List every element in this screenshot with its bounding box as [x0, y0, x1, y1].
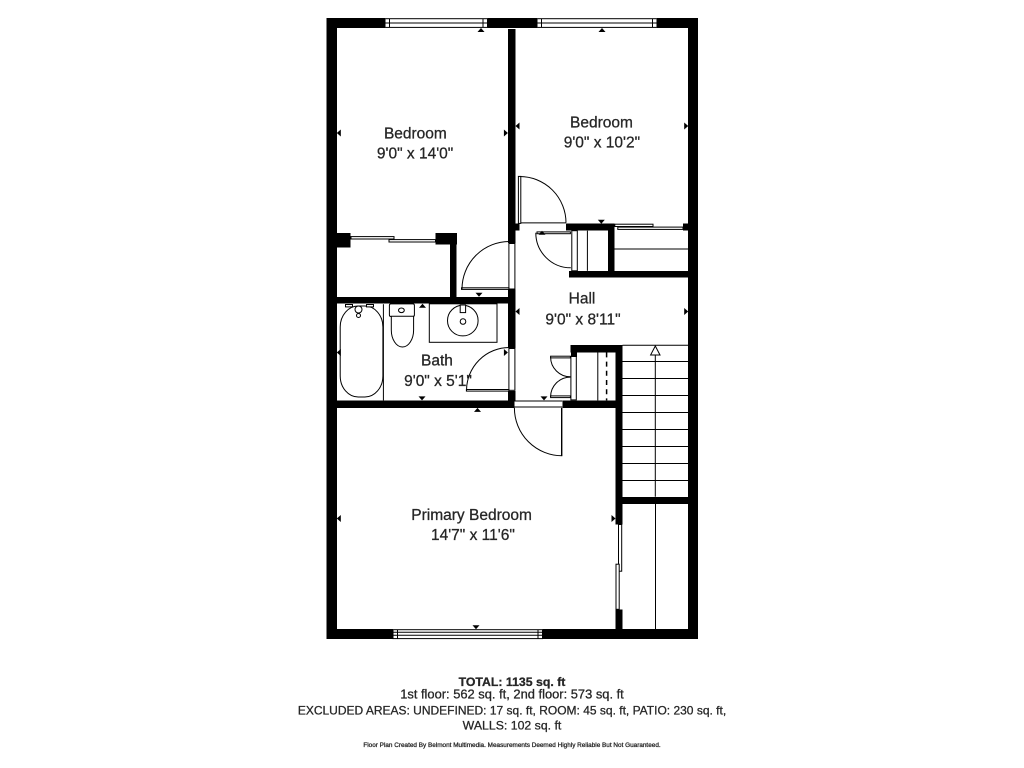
svg-text:Hall: Hall: [569, 291, 596, 308]
svg-text:Primary Bedroom: Primary Bedroom: [411, 507, 532, 524]
svg-text:14'7" x 11'6": 14'7" x 11'6": [431, 527, 515, 544]
svg-text:9'0" x 5'1": 9'0" x 5'1": [404, 373, 472, 390]
svg-text:Bedroom: Bedroom: [384, 126, 447, 143]
svg-text:EXCLUDED AREAS: UNDEFINED: 17: EXCLUDED AREAS: UNDEFINED: 17 sq. ft, RO…: [298, 703, 726, 717]
svg-text:Floor Plan Created By Belmont: Floor Plan Created By Belmont Multimedia…: [363, 742, 661, 749]
svg-text:9'0" x 14'0": 9'0" x 14'0": [377, 145, 453, 162]
svg-text:Bath: Bath: [421, 353, 453, 370]
svg-text:Bedroom: Bedroom: [570, 115, 633, 132]
svg-text:9'0" x 10'2": 9'0" x 10'2": [564, 134, 640, 151]
svg-text:WALLS: 102 sq. ft: WALLS: 102 sq. ft: [463, 718, 562, 732]
svg-text:1st floor: 562 sq. ft, 2nd flo: 1st floor: 562 sq. ft, 2nd floor: 573 sq…: [400, 687, 624, 702]
svg-text:9'0" x 8'11": 9'0" x 8'11": [545, 312, 620, 329]
